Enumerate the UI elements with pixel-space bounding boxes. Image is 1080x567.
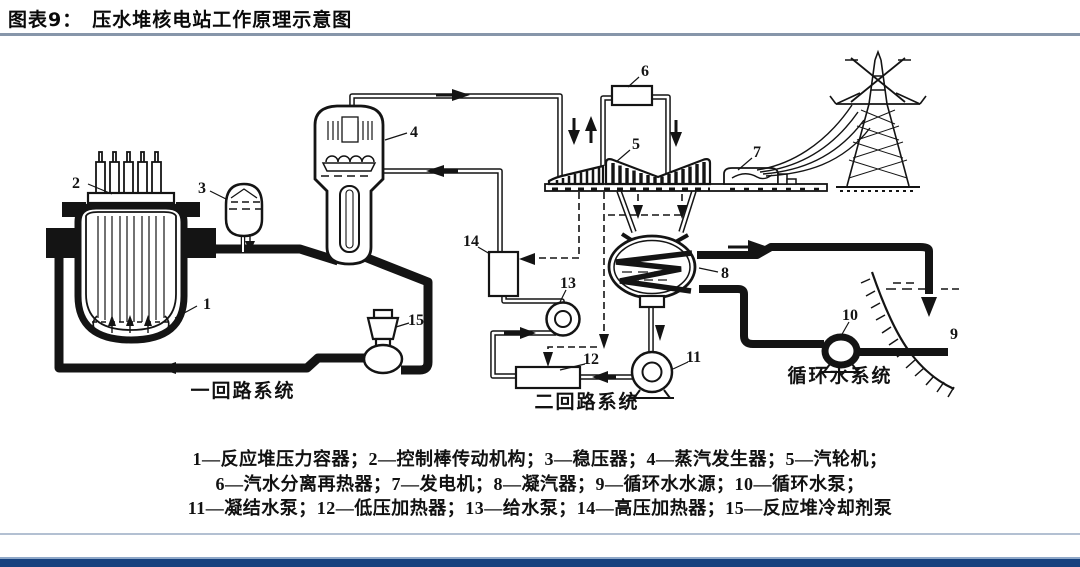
steam-generator bbox=[315, 106, 383, 264]
label-6: 6 bbox=[641, 63, 649, 80]
legend-line: 11—凝结水泵；12—低压加热器；13—给水泵；14—高压加热器；15—反应堆冷… bbox=[40, 496, 1040, 521]
label-8: 8 bbox=[721, 265, 729, 282]
transmission-tower bbox=[830, 52, 926, 191]
label-7: 7 bbox=[753, 144, 761, 161]
reactor-left-nozzle bbox=[46, 228, 78, 258]
legend-line: 6—汽水分离再热器；7—发电机；8—凝汽器；9—循环水水源；10—循环水泵； bbox=[40, 472, 1040, 497]
label-11: 11 bbox=[686, 349, 701, 366]
label-9: 9 bbox=[950, 326, 958, 343]
control-rod-drive-mechanism bbox=[88, 152, 174, 203]
component-number-labels: 1 2 3 4 5 6 7 8 9 10 11 12 13 14 15 bbox=[72, 63, 958, 370]
footer-accent-bar bbox=[0, 557, 1080, 567]
label-5: 5 bbox=[632, 136, 640, 153]
moisture-separator-reheater bbox=[612, 86, 652, 105]
label-13: 13 bbox=[560, 275, 576, 292]
reactor-coolant-pump bbox=[364, 310, 402, 373]
legend-line: 1—反应堆压力容器；2—控制棒传动机构；3—稳压器；4—蒸汽发生器；5—汽轮机； bbox=[40, 447, 1040, 472]
label-14: 14 bbox=[463, 233, 479, 250]
lp-heater bbox=[516, 367, 580, 388]
label-12: 12 bbox=[583, 351, 599, 368]
label-3: 3 bbox=[198, 180, 206, 197]
figure-legend: 1—反应堆压力容器；2—控制棒传动机构；3—稳压器；4—蒸汽发生器；5—汽轮机；… bbox=[40, 447, 1040, 521]
label-1: 1 bbox=[203, 296, 211, 313]
circulating-water-label: 循环水系统 bbox=[787, 364, 892, 387]
label-2: 2 bbox=[72, 175, 80, 192]
label-10: 10 bbox=[842, 307, 858, 324]
report-page: { "page": { "figure_label": "图表9：", "fig… bbox=[0, 0, 1080, 567]
feedwater-pump bbox=[547, 303, 580, 336]
flow-arrows bbox=[108, 89, 937, 383]
primary-loop-label: 一回路系统 bbox=[190, 379, 295, 402]
hp-heater bbox=[489, 252, 518, 296]
label-15: 15 bbox=[408, 312, 424, 329]
circulating-water-pipes bbox=[697, 247, 948, 352]
reactor-right-nozzle bbox=[184, 228, 216, 258]
secondary-loop-label: 二回路系统 bbox=[534, 390, 639, 413]
label-4: 4 bbox=[410, 124, 418, 141]
footer-thin-rule bbox=[0, 533, 1080, 535]
pressurizer bbox=[226, 184, 263, 236]
condenser bbox=[609, 234, 695, 307]
